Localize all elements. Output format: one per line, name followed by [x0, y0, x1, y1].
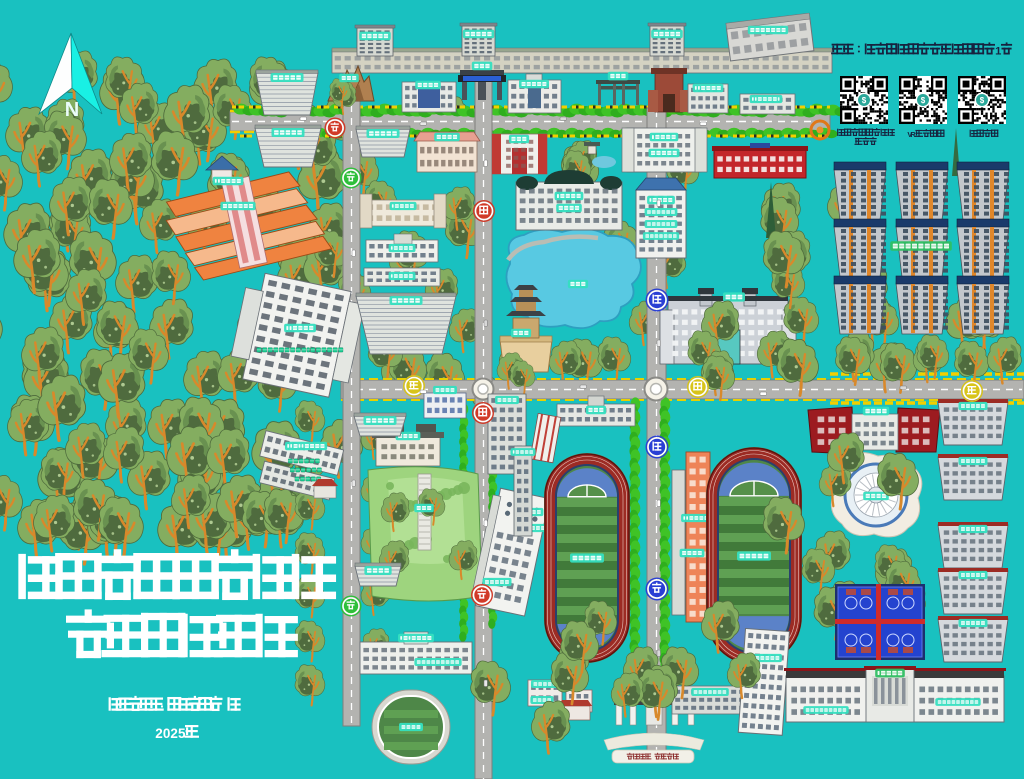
- svg-text:1: 1: [995, 46, 1001, 58]
- svg-text:·: ·: [160, 698, 165, 714]
- svg-text:$: $: [862, 96, 867, 105]
- svg-text:$: $: [921, 96, 926, 105]
- svg-text:VR: VR: [907, 130, 916, 139]
- svg-text:$: $: [980, 96, 985, 105]
- svg-text:2025: 2025: [155, 726, 186, 741]
- svg-text:N: N: [65, 99, 79, 121]
